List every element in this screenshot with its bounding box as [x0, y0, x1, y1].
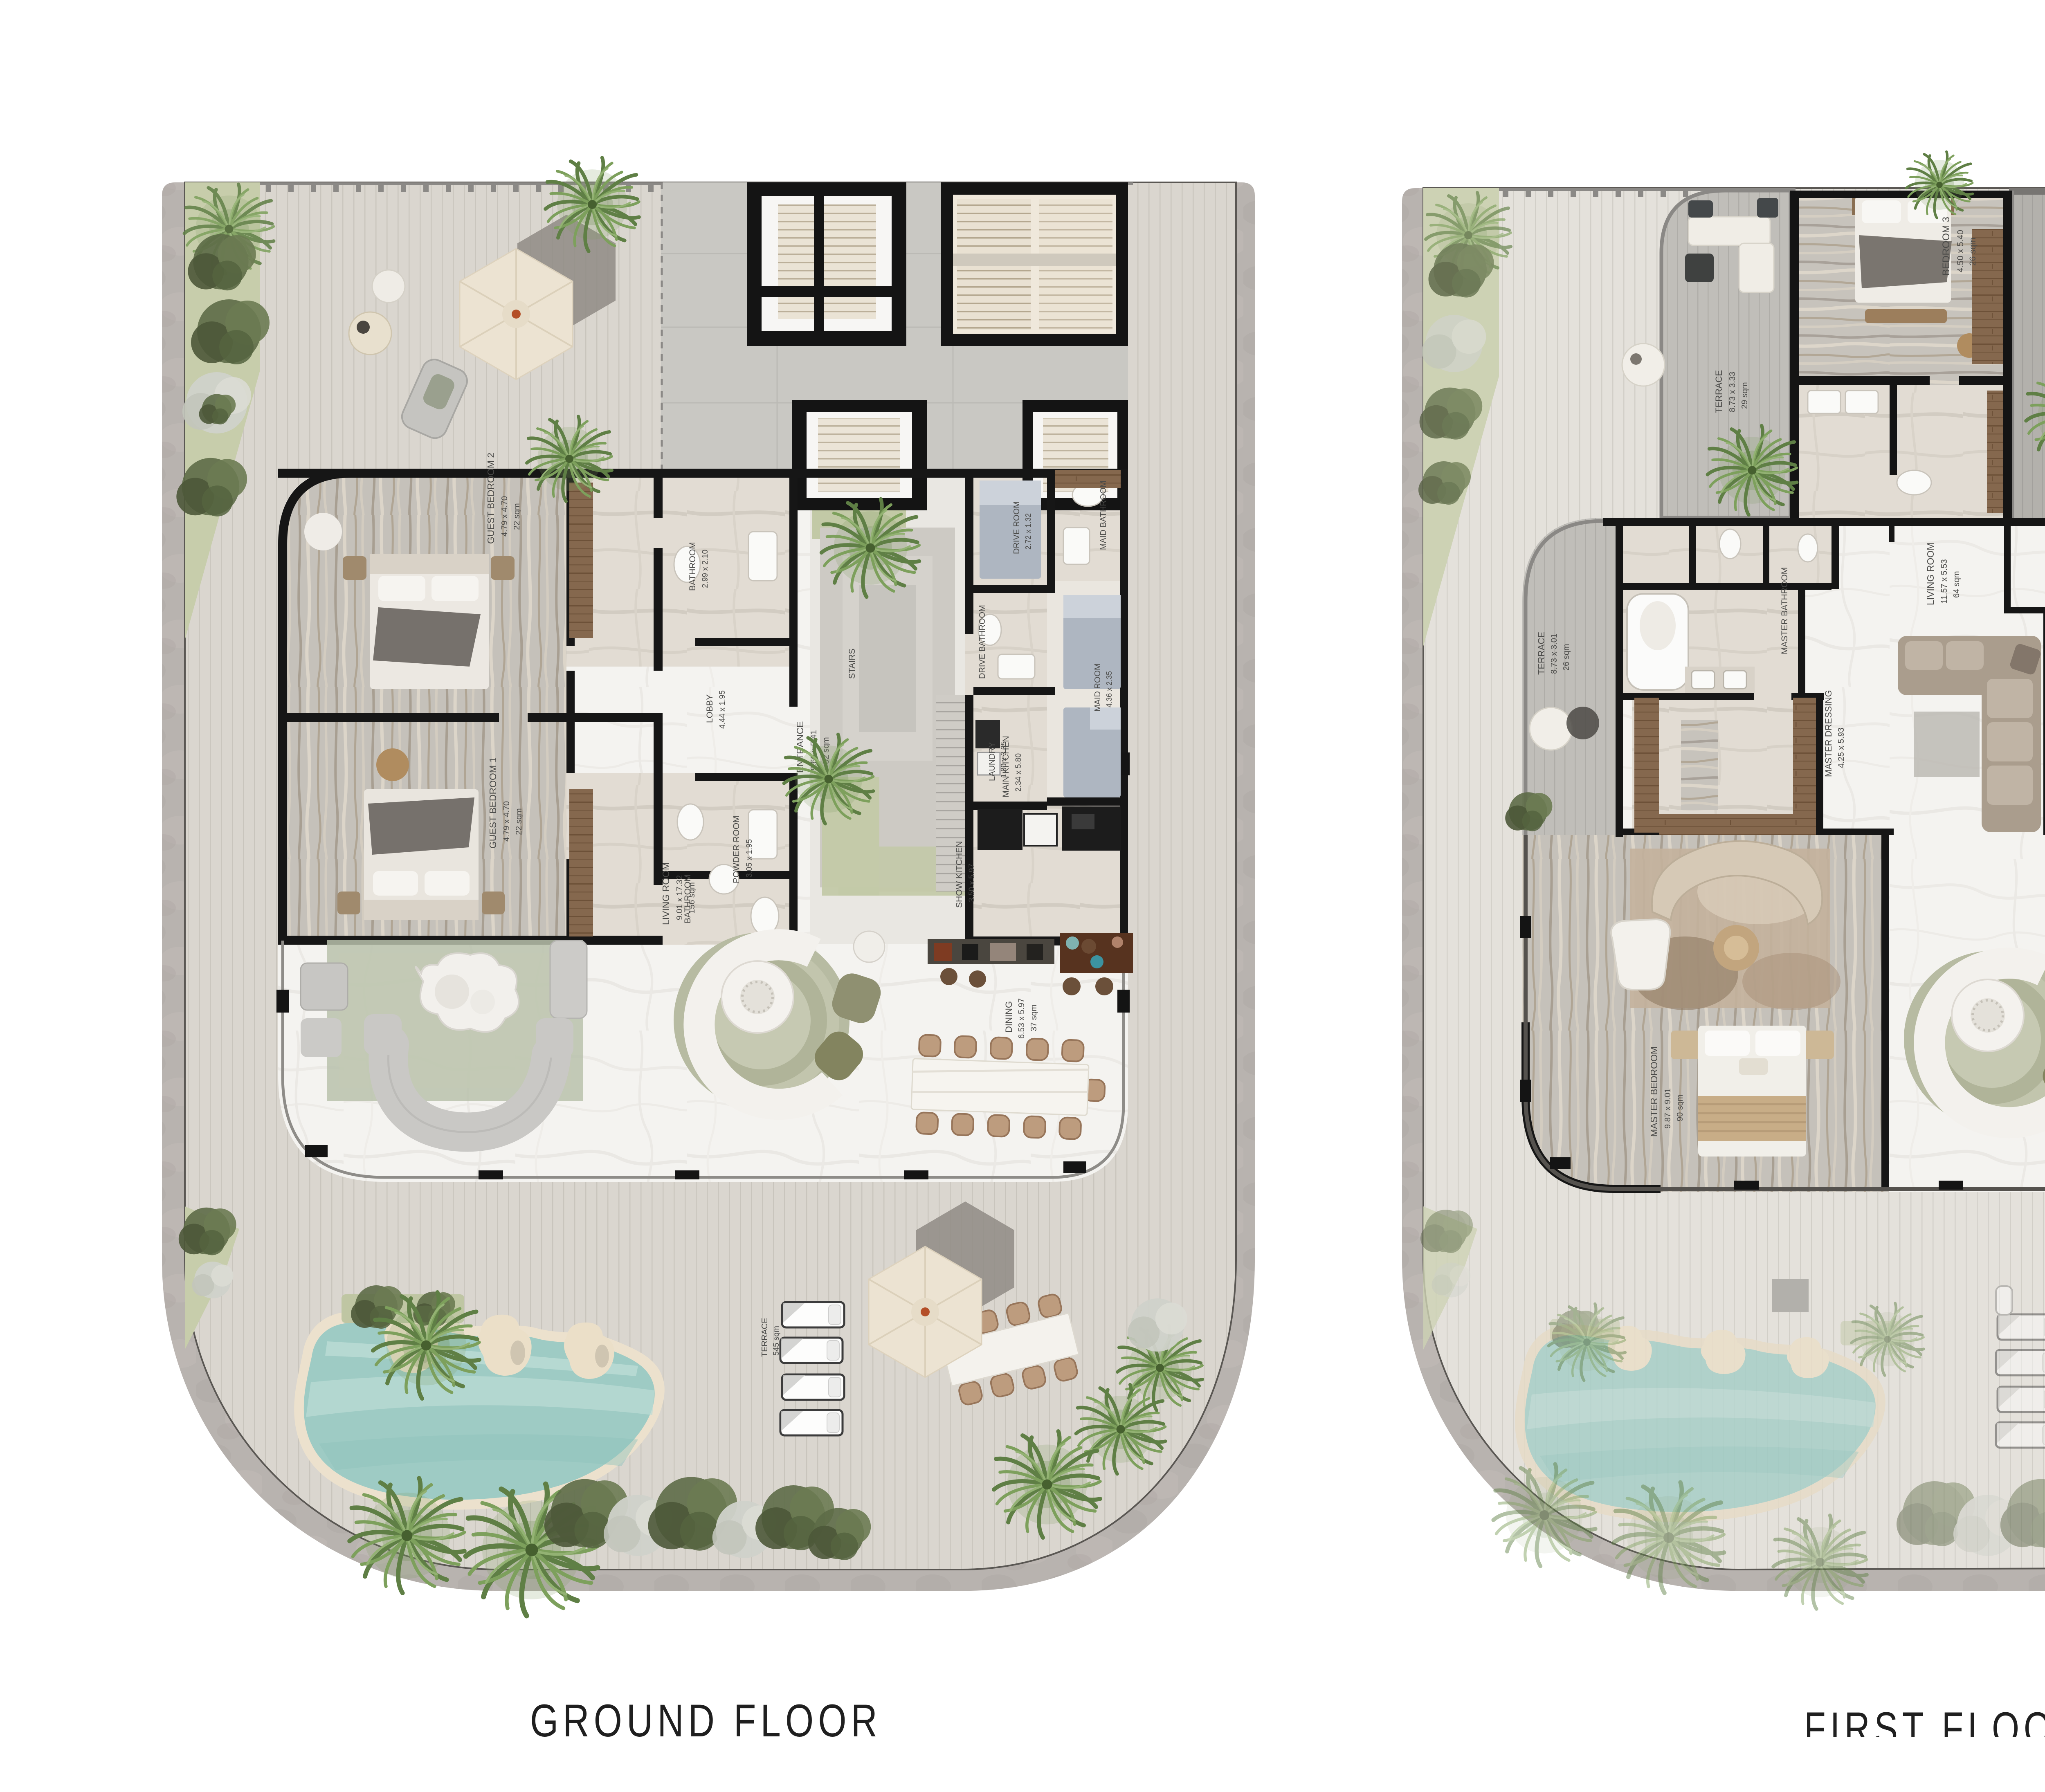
svg-text:STAIRS: STAIRS — [847, 649, 857, 679]
svg-text:4.25 x 5.93: 4.25 x 5.93 — [1837, 728, 1846, 768]
svg-text:26 sqm: 26 sqm — [1968, 238, 1978, 266]
svg-text:29 sqm: 29 sqm — [1740, 382, 1749, 409]
svg-text:GUEST BEDROOM 2: GUEST BEDROOM 2 — [485, 453, 496, 544]
svg-text:545 sqm: 545 sqm — [772, 1326, 781, 1356]
svg-text:BATHROOM: BATHROOM — [688, 542, 697, 591]
svg-text:4.79 x 4.70: 4.79 x 4.70 — [502, 801, 511, 842]
svg-text:1.80 x 3.35: 1.80 x 3.35 — [1000, 741, 1008, 778]
svg-text:TERRACE: TERRACE — [1536, 632, 1546, 675]
svg-text:37 sqm: 37 sqm — [1029, 1004, 1038, 1031]
svg-text:11.57 x 5.53: 11.57 x 5.53 — [1940, 559, 1949, 604]
svg-text:64 sqm: 64 sqm — [1952, 571, 1961, 598]
svg-text:4.44 x 1.95: 4.44 x 1.95 — [718, 690, 727, 729]
svg-text:22 sqm: 22 sqm — [512, 503, 521, 530]
svg-text:9.01 x 17.32: 9.01 x 17.32 — [675, 875, 684, 920]
svg-text:4.79 x 4.70: 4.79 x 4.70 — [500, 496, 509, 537]
svg-text:LOBBY: LOBBY — [705, 694, 715, 723]
svg-text:SHOW KITCHEN: SHOW KITCHEN — [955, 841, 964, 908]
svg-text:TERRACE: TERRACE — [1714, 370, 1724, 413]
svg-text:LIVING ROOM: LIVING ROOM — [661, 862, 671, 925]
svg-text:DRIVE BATHROOM: DRIVE BATHROOM — [978, 605, 987, 679]
svg-text:GROUND FLOOR: GROUND FLOOR — [530, 1695, 882, 1746]
svg-text:9.87 x 9.01: 9.87 x 9.01 — [1663, 1088, 1672, 1129]
svg-text:BEDROOM 3: BEDROOM 3 — [1941, 217, 1952, 276]
svg-text:LIVING ROOM: LIVING ROOM — [1925, 543, 1936, 605]
svg-text:4.50 x 5.40: 4.50 x 5.40 — [1956, 230, 1965, 272]
svg-text:2.99 x 2.10: 2.99 x 2.10 — [701, 550, 710, 588]
svg-text:MASTER BEDROOM: MASTER BEDROOM — [1649, 1046, 1659, 1137]
svg-text:8.73 x 3.33: 8.73 x 3.33 — [1728, 372, 1737, 412]
svg-text:DINING: DINING — [1004, 1001, 1014, 1033]
svg-text:POWDER ROOM: POWDER ROOM — [732, 815, 741, 883]
svg-text:LAUNDRY: LAUNDRY — [988, 742, 997, 781]
svg-text:3.05 x 1.95: 3.05 x 1.95 — [745, 839, 754, 878]
svg-text:22 sqm: 22 sqm — [515, 808, 524, 835]
svg-text:MASTER BATHROOM: MASTER BATHROOM — [1780, 567, 1789, 654]
svg-text:2.72 x 1.32: 2.72 x 1.32 — [1024, 513, 1032, 550]
svg-text:GUEST BEDROOM 1: GUEST BEDROOM 1 — [488, 757, 498, 849]
svg-text:156 sqm: 156 sqm — [688, 882, 697, 914]
svg-text:90 sqm: 90 sqm — [1676, 1094, 1685, 1121]
svg-text:MAID ROOM: MAID ROOM — [1093, 663, 1102, 712]
svg-text:6.53 x 5.97: 6.53 x 5.97 — [1017, 998, 1026, 1039]
svg-text:2.34 x 5.80: 2.34 x 5.80 — [1014, 753, 1023, 792]
svg-text:3.50 x 5.97: 3.50 x 5.97 — [968, 864, 976, 902]
svg-text:MASTER DRESSING: MASTER DRESSING — [1823, 690, 1834, 777]
svg-text:4.36 x 2.35: 4.36 x 2.35 — [1105, 671, 1113, 707]
svg-text:26 sqm: 26 sqm — [1562, 644, 1571, 671]
svg-text:MAID BATHROOM: MAID BATHROOM — [1099, 481, 1108, 550]
svg-text:DRIVE ROOM: DRIVE ROOM — [1012, 501, 1021, 554]
svg-text:8.73 x 3.01: 8.73 x 3.01 — [1550, 633, 1559, 674]
svg-text:TERRACE: TERRACE — [760, 1318, 769, 1357]
